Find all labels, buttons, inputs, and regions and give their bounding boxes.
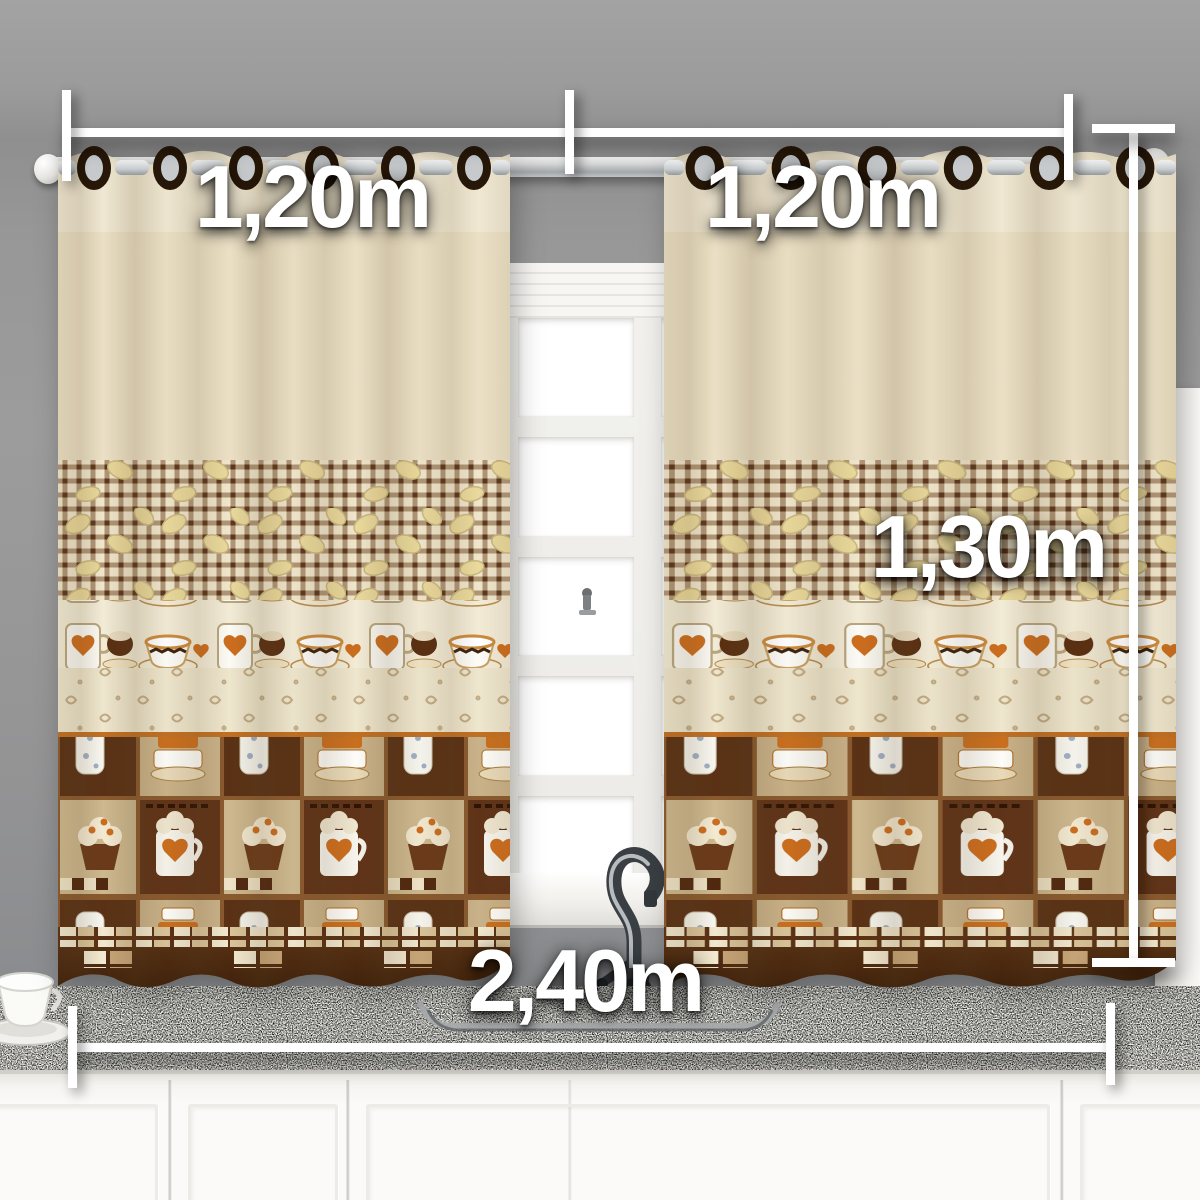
dimension-overlay: 1,20m 1,20m 1,30m 2,40m bbox=[0, 0, 1200, 1200]
dimension-tick bbox=[565, 90, 574, 174]
dimension-tick bbox=[1106, 1003, 1115, 1085]
dimension-label-total-width: 2,40m bbox=[468, 930, 703, 1032]
dimension-label-panel-height: 1,30m bbox=[871, 496, 1106, 598]
dimension-line-right-width bbox=[572, 128, 1072, 137]
dimension-label-right-panel-width: 1,20m bbox=[705, 146, 940, 248]
dimension-tick bbox=[1092, 124, 1175, 133]
dimension-tick bbox=[1092, 958, 1175, 967]
dimension-line-height bbox=[1129, 132, 1138, 962]
dimension-tick bbox=[1064, 94, 1073, 180]
dimension-tick bbox=[62, 90, 71, 181]
dimension-line-total-width bbox=[72, 1043, 1113, 1052]
dimension-label-left-panel-width: 1,20m bbox=[195, 146, 430, 248]
dimension-tick bbox=[68, 1006, 77, 1088]
product-photo: 1,20m 1,20m 1,30m 2,40m bbox=[0, 0, 1200, 1200]
dimension-line-left-width bbox=[66, 128, 572, 137]
